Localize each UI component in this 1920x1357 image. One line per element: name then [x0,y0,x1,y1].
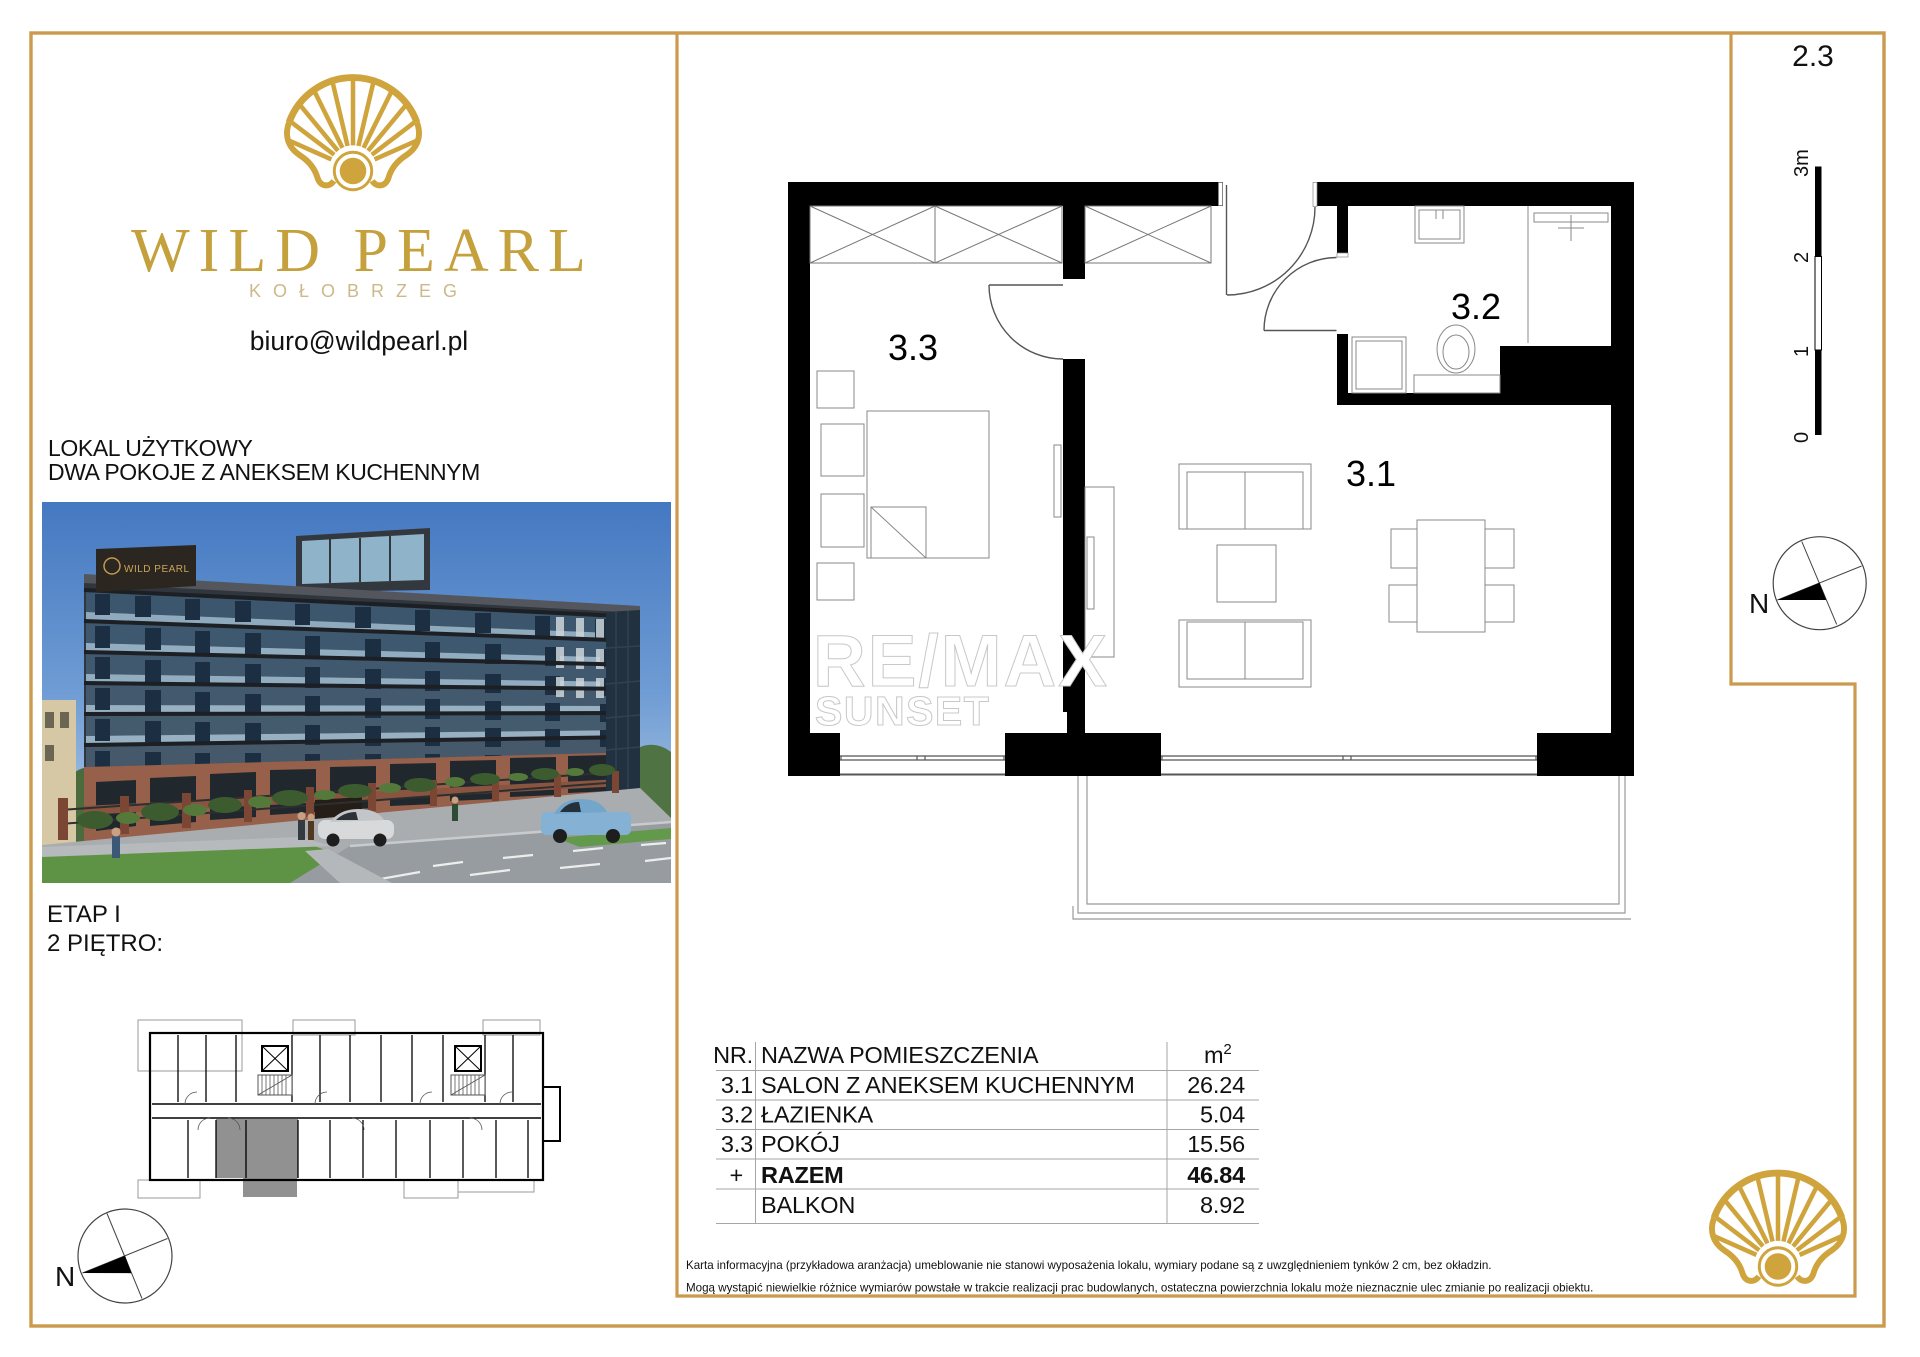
svg-text:+: + [729,1162,743,1188]
svg-text:POKÓJ: POKÓJ [761,1131,840,1157]
svg-text:3.1: 3.1 [721,1072,753,1098]
svg-text:ETAP I: ETAP I [47,901,121,928]
svg-text:3.3: 3.3 [721,1131,753,1157]
svg-text:26.24: 26.24 [1187,1072,1245,1098]
svg-text:WILD PEARL: WILD PEARL [131,217,595,285]
svg-text:3.2: 3.2 [1451,286,1501,327]
svg-text:2: 2 [1791,252,1813,263]
svg-text:RAZEM: RAZEM [761,1162,844,1188]
svg-text:0: 0 [1791,432,1813,443]
svg-text:2.3: 2.3 [1792,40,1834,73]
svg-text:biuro@wildpearl.pl: biuro@wildpearl.pl [250,326,468,356]
svg-text:NAZWA POMIESZCZENIA: NAZWA POMIESZCZENIA [761,1042,1039,1068]
svg-text:46.84: 46.84 [1187,1162,1245,1188]
svg-text:3m: 3m [1791,149,1813,177]
svg-text:3.2: 3.2 [721,1102,753,1128]
svg-text:5.04: 5.04 [1200,1102,1245,1128]
svg-text:15.56: 15.56 [1187,1131,1245,1157]
svg-text:Karta informacyjna (przykładow: Karta informacyjna (przykładowa aranżacj… [686,1259,1492,1272]
svg-text:8.92: 8.92 [1200,1192,1245,1218]
svg-text:2 PIĘTRO:: 2 PIĘTRO: [47,930,163,957]
svg-text:ŁAZIENKA: ŁAZIENKA [761,1102,874,1128]
svg-text:BALKON: BALKON [761,1192,855,1218]
svg-text:Mogą wystąpić niewielkie różni: Mogą wystąpić niewielkie różnice wymiaró… [686,1282,1593,1295]
svg-text:N: N [1749,588,1769,619]
svg-text:SUNSET: SUNSET [815,688,990,734]
svg-text:SALON Z ANEKSEM KUCHENNYM: SALON Z ANEKSEM KUCHENNYM [761,1072,1135,1098]
svg-text:KOŁOBRZEG: KOŁOBRZEG [249,281,469,301]
svg-text:m2: m2 [1204,1041,1232,1068]
svg-text:3.3: 3.3 [888,327,938,368]
svg-text:DWA POKOJE Z ANEKSEM KUCHENNYM: DWA POKOJE Z ANEKSEM KUCHENNYM [48,459,480,485]
svg-text:NR.: NR. [713,1042,753,1068]
svg-text:N: N [55,1261,75,1292]
svg-text:LOKAL UŻYTKOWY: LOKAL UŻYTKOWY [48,435,252,461]
svg-text:WILD PEARL: WILD PEARL [124,564,190,575]
svg-text:3.1: 3.1 [1346,453,1396,494]
svg-text:1: 1 [1791,346,1813,357]
